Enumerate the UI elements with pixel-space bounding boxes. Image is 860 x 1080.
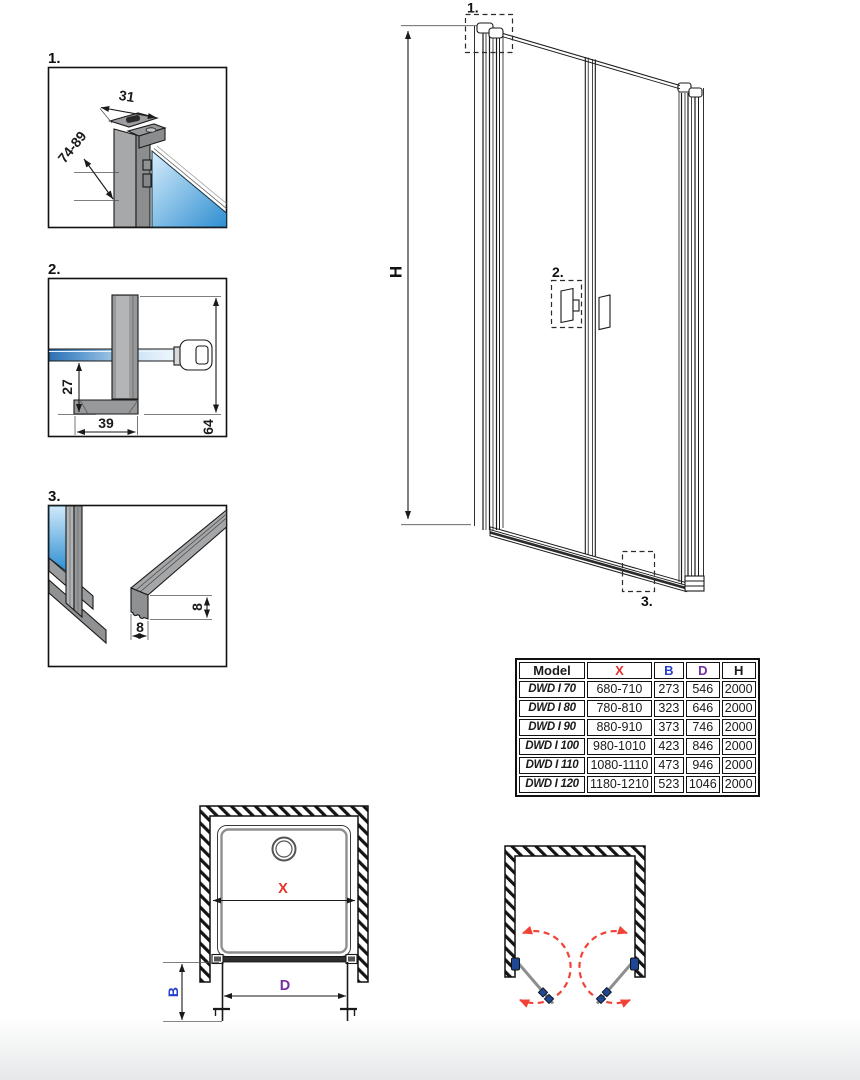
elevation-drawing: H	[387, 0, 705, 609]
plan-view: X B D	[163, 806, 368, 1022]
height-label: H	[387, 266, 406, 278]
dimension-b: B	[163, 963, 222, 1022]
dim-b-label: B	[165, 987, 181, 997]
dimension-d: D	[224, 978, 346, 996]
size-table: Model X B D H DWD I 70680-7102735462000D…	[515, 658, 760, 797]
left-door-handle	[561, 289, 573, 323]
detail-2-label: 2.	[48, 261, 61, 278]
cell-model: DWD I 90	[519, 719, 585, 736]
size-table-body: DWD I 70680-7102735462000DWD I 80780-810…	[519, 681, 756, 793]
cell-x: 1080-1110	[587, 757, 652, 774]
cell-x: 780-810	[587, 700, 652, 717]
col-header-model: Model	[519, 662, 585, 679]
threshold-end-cap	[685, 576, 704, 591]
cell-model: DWD I 120	[519, 776, 585, 793]
detail-3-inset: 3. 8 8	[48, 488, 227, 667]
dim-8-width-text: 8	[136, 619, 144, 635]
cell-d: 946	[686, 757, 720, 774]
dim-27-text: 27	[59, 379, 75, 395]
detail-1-label: 1.	[48, 50, 61, 67]
cell-h: 2000	[722, 700, 756, 717]
right-wall-profile	[678, 83, 704, 590]
cell-model: DWD I 70	[519, 681, 585, 698]
left-swing-door	[512, 958, 554, 1004]
cell-x: 980-1010	[587, 738, 652, 755]
cell-d: 546	[686, 681, 720, 698]
right-door-hinge	[631, 958, 639, 970]
detail-2-inset: 2. 27 39	[48, 261, 227, 437]
cell-x: 880-910	[587, 719, 652, 736]
cell-model: DWD I 100	[519, 738, 585, 755]
cell-model: DWD I 80	[519, 700, 585, 717]
dim-8-height-text: 8	[189, 603, 205, 611]
left-wall-profile	[475, 23, 504, 530]
swing-diagram	[505, 846, 645, 1004]
size-table-row: DWD I 70680-7102735462000	[519, 681, 756, 698]
size-table-row: DWD I 90880-9103737462000	[519, 719, 756, 736]
dim-31-text: 31	[118, 87, 136, 105]
cell-b: 323	[654, 700, 684, 717]
cell-b: 273	[654, 681, 684, 698]
callout-1-label: 1.	[467, 0, 479, 16]
cell-b: 523	[654, 776, 684, 793]
door-panels	[503, 34, 680, 89]
size-table-row: DWD I 1201180-121052310462000	[519, 776, 756, 793]
detail-1-inset: 1. 31 74-89	[48, 50, 227, 228]
detail-callouts: 1. 2. 3.	[466, 0, 655, 609]
profile-highlight	[116, 296, 129, 398]
cell-h: 2000	[722, 719, 756, 736]
size-table-header-row: Model X B D H	[519, 662, 756, 679]
dim-64-text: 64	[200, 419, 216, 435]
height-dimension: H	[387, 26, 478, 525]
col-header-d: D	[686, 662, 720, 679]
door-pivot-top-cap	[689, 88, 702, 97]
door-pivot-top-cap	[489, 28, 503, 38]
size-table-row: DWD I 100980-10104238462000	[519, 738, 756, 755]
drawing-canvas: 1. 31 74-89	[0, 0, 860, 1080]
dim-39-text: 39	[98, 415, 114, 431]
cell-x: 680-710	[587, 681, 652, 698]
cell-b: 473	[654, 757, 684, 774]
left-door-hinge	[512, 958, 520, 970]
left-hinge-detail	[214, 957, 221, 962]
size-table-row: DWD I 1101080-11104739462000	[519, 757, 756, 774]
detail-3-label: 3.	[48, 488, 61, 505]
cell-d: 746	[686, 719, 720, 736]
callout-3-label: 3.	[641, 593, 653, 609]
cell-h: 2000	[722, 681, 756, 698]
cell-h: 2000	[722, 757, 756, 774]
dim-d-label: D	[280, 978, 290, 994]
size-table-row: DWD I 80780-8103236462000	[519, 700, 756, 717]
right-hinge-detail	[348, 957, 355, 962]
shower-door-technical-drawing: 1. 31 74-89	[0, 0, 860, 1080]
col-header-x: X	[587, 662, 652, 679]
cell-d: 646	[686, 700, 720, 717]
dim-x-label: X	[278, 881, 288, 897]
screw-hole	[146, 128, 156, 132]
right-door-handle	[599, 295, 610, 330]
cell-b: 373	[654, 719, 684, 736]
swing-walls	[505, 846, 645, 977]
left-door-handle-knob	[573, 300, 579, 311]
col-header-h: H	[722, 662, 756, 679]
callout-2-label: 2.	[552, 264, 564, 280]
cell-d: 846	[686, 738, 720, 755]
cell-b: 423	[654, 738, 684, 755]
cell-model: DWD I 110	[519, 757, 585, 774]
cell-h: 2000	[722, 738, 756, 755]
right-swing-door	[596, 958, 638, 1004]
cell-h: 2000	[722, 776, 756, 793]
cell-d: 1046	[686, 776, 720, 793]
col-header-b: B	[654, 662, 684, 679]
cell-x: 1180-1210	[587, 776, 652, 793]
center-stiles	[585, 57, 595, 556]
bottom-threshold	[490, 527, 704, 592]
